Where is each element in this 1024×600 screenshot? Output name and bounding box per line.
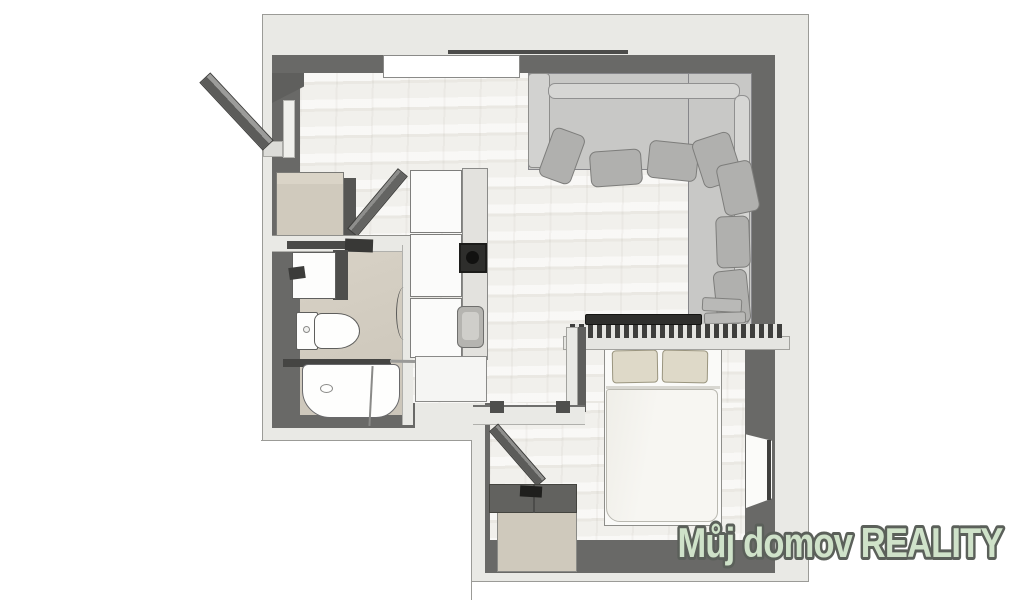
partition-wall-face	[578, 327, 586, 412]
kitchen-cabinet-front-1	[410, 170, 462, 233]
stacked-cushion	[704, 311, 746, 324]
bathtub-drain	[320, 384, 333, 393]
sofa-cushion	[589, 148, 643, 188]
slatted-rail	[570, 324, 782, 338]
kitchen-lower-cabinet	[415, 356, 487, 402]
sofa-cushion	[715, 215, 751, 268]
washbasin-faucet	[288, 266, 306, 280]
duvet	[606, 389, 718, 522]
bathroom-shelf-bracket	[345, 239, 373, 253]
partition-wall	[566, 327, 578, 412]
tv	[585, 314, 702, 325]
storage-box-handle	[520, 485, 543, 497]
bathtub	[302, 364, 400, 418]
toilet-bowl	[314, 313, 360, 349]
kitchen-cabinet-front-3	[410, 298, 462, 358]
doorway-cap-left	[490, 401, 504, 413]
kitchen-cabinet-front-2	[410, 234, 462, 297]
bed-pillow-right	[662, 350, 709, 384]
top-window	[383, 55, 520, 78]
kitchen-sink-basin	[462, 312, 479, 340]
watermark: Můj domov REALITY	[665, 505, 1015, 577]
bed-pillow-left	[612, 350, 659, 384]
headboard-shelf	[563, 336, 790, 350]
footprint-notch	[261, 440, 472, 600]
sofa-backrest-top	[548, 83, 740, 99]
side-window-frame-line	[767, 440, 771, 500]
doorway-cap-right	[556, 401, 570, 413]
top-window-glass-line	[448, 50, 628, 54]
cooktop-burner	[466, 251, 479, 264]
entry-wardrobe-top	[277, 173, 343, 184]
toilet-flush-button	[303, 326, 310, 333]
entry-door-jamb	[283, 100, 295, 158]
storage-box-front	[497, 513, 577, 572]
floor-plan-image: Můj domov REALITY	[0, 0, 1024, 600]
watermark-text: Můj domov REALITY	[678, 519, 1004, 566]
